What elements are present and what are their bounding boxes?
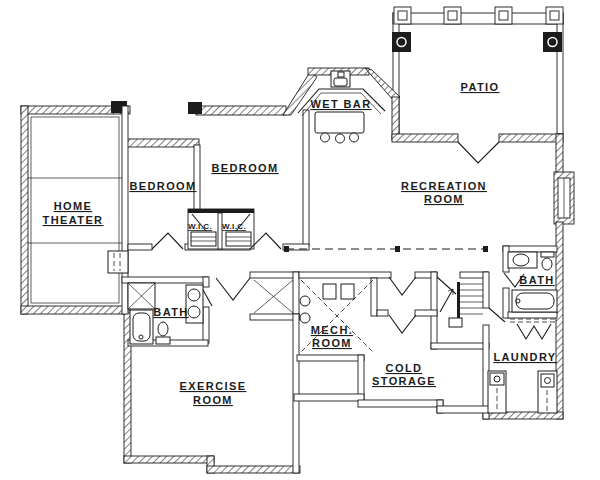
door-icon <box>389 315 416 333</box>
bar-stool-icon <box>350 133 359 142</box>
staircase <box>440 282 483 327</box>
wic-left-label: W.I.C. <box>188 222 212 231</box>
wet-bar-label: WET BAR <box>310 98 371 110</box>
patio-column-icon <box>392 32 562 52</box>
water-heater-icon <box>300 296 310 306</box>
bathtub-icon <box>512 290 557 312</box>
linen-shelves-icon <box>510 319 556 322</box>
furnace-icon <box>323 284 336 299</box>
patio-structure <box>392 7 563 140</box>
bedroom-left-label: BEDROOM <box>129 180 196 192</box>
home-theater-label: THEATER <box>43 214 104 226</box>
exercise-room-label: ROOM <box>193 394 233 406</box>
media-niche-icon <box>108 251 128 273</box>
bedroom-right-label: BEDROOM <box>211 162 278 174</box>
recreation-room-label: ROOM <box>424 193 464 205</box>
under-stair-storage <box>254 280 293 313</box>
floor-plan-page: HOME THEATER BEDROOM BEDROOM W.I.C. W.I.… <box>0 0 600 480</box>
home-theater-label: HOME <box>54 200 93 212</box>
bath-left-label: BATH <box>153 306 188 318</box>
washer-icon <box>538 371 557 413</box>
patio-double-door-icon <box>458 142 499 163</box>
bar-sink-icon <box>331 71 350 87</box>
door-icon <box>250 233 281 249</box>
laundry-label: LAUNDRY <box>493 351 556 363</box>
beam-line <box>284 246 488 252</box>
water-heater-icon <box>300 313 310 323</box>
stair-rail-icon <box>457 282 460 320</box>
laundry-sink-icon <box>488 371 506 413</box>
floor-plan-drawing: HOME THEATER BEDROOM BEDROOM W.I.C. W.I.… <box>0 0 600 480</box>
wic-right-label: W.I.C. <box>222 222 246 231</box>
vanity-sink-icon <box>508 252 537 268</box>
toilet-icon <box>541 252 554 270</box>
mech-room-label: MECH. <box>311 324 353 336</box>
wall-post-icon <box>188 102 202 114</box>
patio-label: PATIO <box>461 81 500 93</box>
furnace-icon <box>341 284 354 299</box>
door-icon <box>389 277 416 295</box>
bar-stool-icon <box>336 134 345 143</box>
exercise-room-label: EXERCISE <box>180 380 247 392</box>
bar-island-icon <box>315 112 364 143</box>
cold-storage-label: STORAGE <box>372 375 436 387</box>
cold-storage-label: COLD <box>386 362 423 374</box>
bifold-door-icon <box>517 324 551 339</box>
laundry-fixtures <box>488 371 557 413</box>
mech-room-label: ROOM <box>312 337 352 349</box>
shower-icon <box>128 283 155 309</box>
recreation-room-label: RECREATION <box>401 180 487 192</box>
bathtub-icon <box>130 310 153 344</box>
door-icon <box>152 233 183 249</box>
bath-right-label: BATH <box>519 274 554 286</box>
stair-arrow-icon <box>440 289 453 312</box>
toilet-icon <box>156 322 170 344</box>
bar-stool-icon <box>321 133 330 142</box>
door-icon <box>216 278 250 300</box>
